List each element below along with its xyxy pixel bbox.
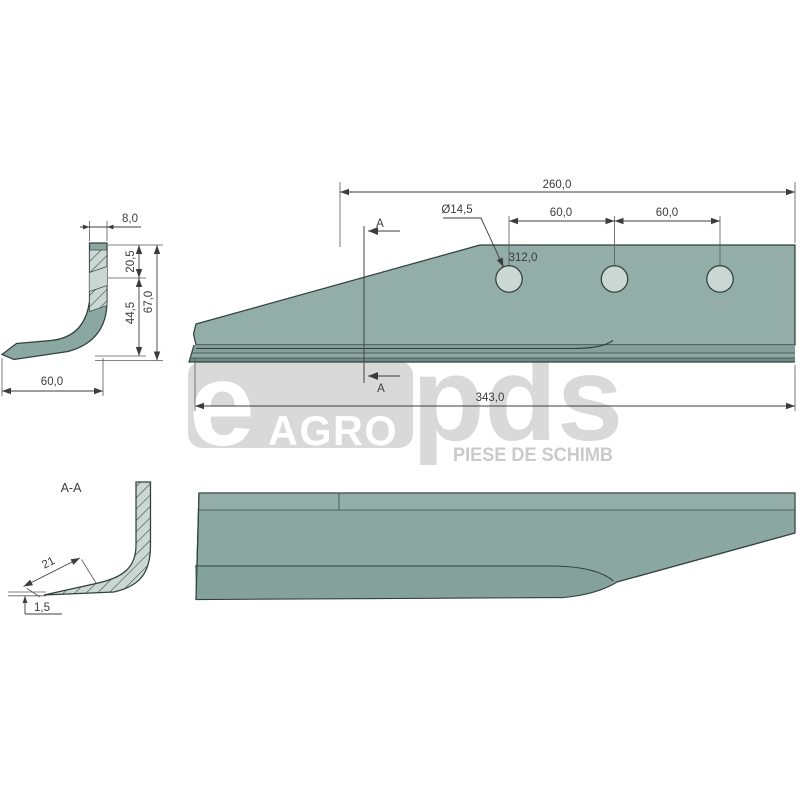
section-hatch — [44, 482, 151, 595]
dim-overall: 343,0 — [476, 392, 505, 404]
dim-ref: 312,0 — [509, 252, 538, 264]
watermark-tagline: PIESE DE SCHIMB — [453, 445, 613, 466]
section-label-bottom: A — [377, 383, 385, 395]
dim-hole-dia: Ø14,5 — [441, 204, 472, 216]
technical-drawing-page: e AGRO pds PIESE DE SCHIMB 8,0 20,5 44,5… — [0, 0, 800, 800]
dim-top-width: 8,0 — [122, 213, 138, 225]
hole-3 — [707, 266, 733, 292]
dim-hole-space-1: 60,0 — [550, 207, 572, 219]
arrow — [83, 225, 90, 230]
side-view: 8,0 20,5 44,5 67,0 60,0 — [2, 213, 163, 396]
section-view: A-A 21 1,5 — [8, 481, 151, 614]
dim-bevel: 21 — [40, 555, 57, 572]
section-label-top: A — [376, 218, 384, 230]
arrow — [107, 225, 114, 230]
dim-foot: 60,0 — [41, 376, 63, 388]
top-view-bevel-mid — [191, 353, 796, 358]
bottom-view-bevel-zone — [195, 566, 614, 599]
watermark-agro: AGRO — [268, 407, 398, 454]
dim-upper: 20,5 — [125, 250, 137, 272]
hole-1 — [496, 266, 522, 292]
bottom-view — [195, 493, 795, 600]
dim-height: 67,0 — [143, 291, 155, 313]
hole-2 — [601, 266, 627, 292]
dim-lower: 44,5 — [125, 302, 137, 324]
top-view-face — [194, 245, 796, 345]
dim-length-right: 260,0 — [543, 179, 572, 191]
section-title: A-A — [61, 481, 83, 495]
blade-technical-drawing: e AGRO pds PIESE DE SCHIMB 8,0 20,5 44,5… — [0, 0, 800, 800]
dim-hole-space-2: 60,0 — [656, 207, 678, 219]
dim-tip: 1,5 — [34, 602, 50, 614]
bottom-view-top-strip — [198, 494, 795, 510]
